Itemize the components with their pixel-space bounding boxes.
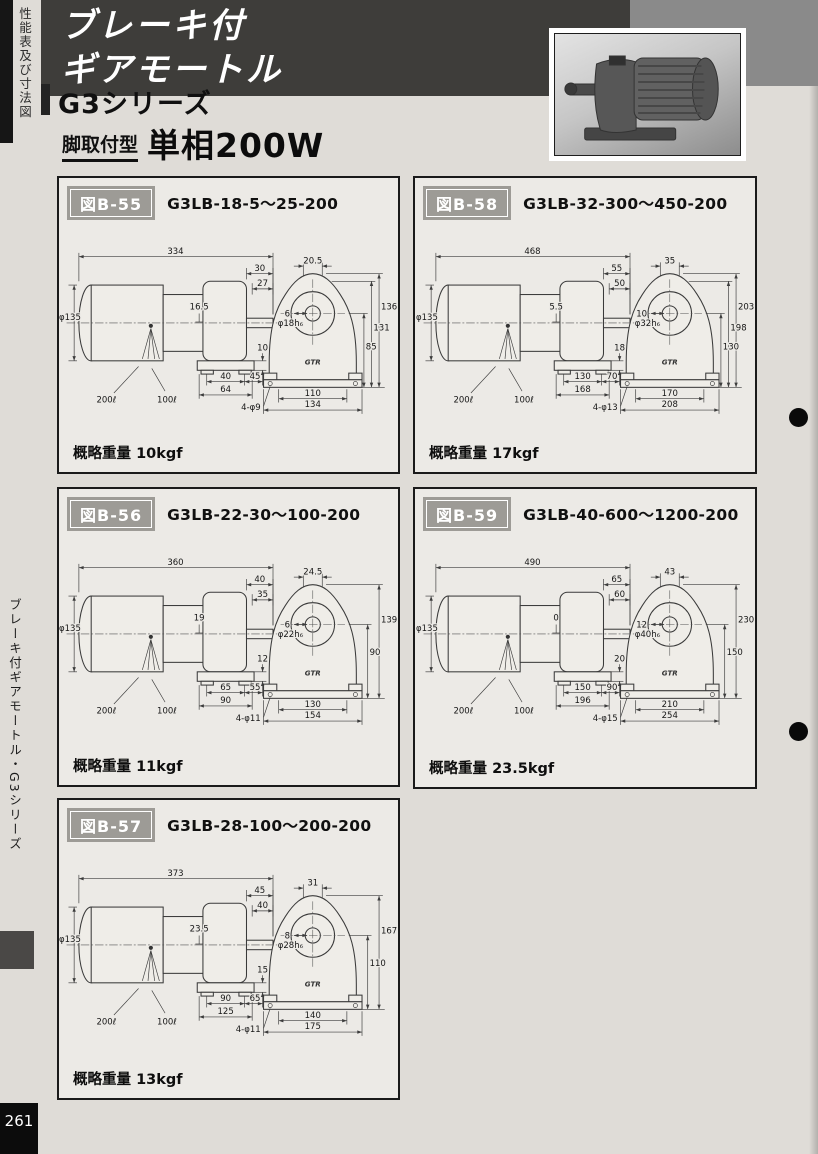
weight-label: 概略重量 bbox=[73, 759, 131, 775]
dim-label: 210 bbox=[661, 700, 677, 710]
dim-label: 130 bbox=[574, 372, 590, 382]
dim-label: φ40h₆ bbox=[634, 630, 660, 640]
dim-label: 12 bbox=[257, 654, 268, 664]
dim-label: 50 bbox=[614, 279, 625, 289]
gear-motor-photo bbox=[554, 33, 741, 156]
left-sidebar-vertical-label: ブレーキ付ギアモートル・G3シリーズ bbox=[5, 598, 24, 852]
dim-label: 140 bbox=[305, 1011, 321, 1021]
dim-label: 0 bbox=[553, 614, 558, 624]
dim-label: 131 bbox=[373, 324, 389, 334]
dim-label: φ18h₆ bbox=[278, 319, 304, 329]
figure-id-badge: 図B-58 bbox=[423, 186, 511, 220]
dim-label: 16.5 bbox=[190, 303, 209, 313]
dim-label: 35 bbox=[257, 590, 268, 600]
weight-label: 概略重量 bbox=[429, 446, 487, 462]
figure-header: 図B-57G3LB-28-100～200-200 bbox=[67, 808, 398, 842]
dim-label: 373 bbox=[167, 869, 183, 879]
dim-label: φ32h₆ bbox=[634, 319, 660, 329]
mount-type-label: 脚取付型 bbox=[62, 130, 138, 162]
approx-weight: 概略重量 17kgf bbox=[429, 442, 539, 463]
figure-header: 図B-58G3LB-32-300～450-200 bbox=[423, 186, 755, 220]
page-edge-shade bbox=[809, 0, 818, 1154]
dim-label: 168 bbox=[574, 385, 590, 395]
catalog-page: 性能表及び寸法図 ブレーキ付 ギアモートル bbox=[0, 0, 818, 1154]
dim-label: 55 bbox=[611, 264, 622, 274]
figure-id: 図B-57 bbox=[70, 811, 152, 839]
figure-id: 図B-56 bbox=[70, 500, 152, 528]
weight-value: 17kgf bbox=[492, 446, 539, 462]
dim-label: φ135 bbox=[416, 624, 438, 634]
dim-label: 200ℓ bbox=[96, 395, 116, 405]
dim-label: 130 bbox=[722, 342, 738, 352]
figure-header: 図B-56G3LB-22-30～100-200 bbox=[67, 497, 398, 531]
dim-label: 6 bbox=[285, 620, 290, 630]
dim-label: 4-φ11 bbox=[236, 1025, 261, 1035]
dim-label: φ22h₆ bbox=[278, 630, 304, 640]
dim-label: 65 bbox=[611, 575, 622, 585]
dim-label: 31 bbox=[307, 878, 318, 888]
weight-value: 11kgf bbox=[136, 759, 183, 775]
weight-value: 10kgf bbox=[136, 446, 183, 462]
dim-label: 90 bbox=[220, 696, 231, 706]
dim-label: 90 bbox=[370, 648, 381, 658]
binding-dot-top bbox=[789, 408, 808, 427]
dim-label: 40 bbox=[254, 575, 265, 585]
binding-dot-bottom bbox=[789, 722, 808, 741]
weight-value: 13kgf bbox=[136, 1072, 183, 1088]
dim-label: 230 bbox=[737, 616, 753, 626]
dim-label: 45 bbox=[250, 372, 261, 382]
dim-label: 203 bbox=[737, 303, 753, 313]
brand-mark: GTR bbox=[305, 358, 321, 367]
dim-label: 100ℓ bbox=[157, 1017, 177, 1027]
dim-label: 139 bbox=[381, 616, 397, 626]
dim-label: 198 bbox=[730, 324, 746, 334]
series-accent-bar bbox=[41, 84, 50, 115]
side-view bbox=[79, 903, 273, 996]
dim-label: 208 bbox=[661, 400, 677, 410]
dim-label: 43 bbox=[664, 567, 675, 577]
gear-motor-photo-illustration bbox=[555, 34, 740, 155]
dim-label: 90 bbox=[606, 683, 617, 693]
dim-label: 20.5 bbox=[303, 256, 322, 266]
figure-header: 図B-59G3LB-40-600～1200-200 bbox=[423, 497, 755, 531]
dim-label: 45 bbox=[254, 886, 265, 896]
dim-label: φ135 bbox=[59, 935, 81, 945]
model-number: G3LB-28-100～200-200 bbox=[167, 814, 371, 836]
dim-label: 10 bbox=[257, 343, 268, 353]
dim-label: 5.5 bbox=[549, 303, 563, 313]
dim-label: φ135 bbox=[59, 313, 81, 323]
corner-strip bbox=[0, 0, 13, 143]
weight-label: 概略重量 bbox=[73, 446, 131, 462]
model-number: G3LB-22-30～100-200 bbox=[167, 503, 360, 525]
dim-label: 55 bbox=[250, 683, 261, 693]
dim-label: 40 bbox=[220, 372, 231, 382]
dim-label: 150 bbox=[574, 683, 590, 693]
dim-label: 85 bbox=[366, 342, 377, 352]
dimension-drawing: 373454023.5φ135φ28h₆200ℓ100ℓ159065125318… bbox=[59, 846, 398, 1042]
dim-label: 64 bbox=[220, 385, 231, 395]
figure-box: 図B-59G3LB-40-600～1200-20049065600φ135φ40… bbox=[413, 487, 757, 789]
figure-id: 図B-59 bbox=[426, 500, 508, 528]
dim-label: φ135 bbox=[59, 624, 81, 634]
dim-label: 27 bbox=[257, 279, 268, 289]
dim-label: 12 bbox=[636, 620, 647, 630]
dim-label: φ28h₆ bbox=[278, 941, 304, 951]
figure-box: 図B-55G3LB-18-5～25-200334302716.5φ135φ18h… bbox=[57, 176, 400, 474]
dim-label: 167 bbox=[381, 927, 397, 937]
dim-label: 19 bbox=[194, 614, 205, 624]
dim-label: 65 bbox=[220, 683, 231, 693]
dim-label: 110 bbox=[305, 389, 321, 399]
dim-label: 30 bbox=[254, 264, 265, 274]
dim-label: 8 bbox=[285, 931, 290, 941]
figure-box: 図B-57G3LB-28-100～200-200373454023.5φ135φ… bbox=[57, 798, 400, 1100]
dim-label: 200ℓ bbox=[453, 395, 473, 405]
model-number: G3LB-32-300～450-200 bbox=[523, 192, 727, 214]
side-view bbox=[79, 592, 273, 685]
dim-label: 110 bbox=[370, 959, 386, 969]
brand-mark: GTR bbox=[305, 980, 321, 989]
dim-label: 35 bbox=[664, 256, 675, 266]
dim-label: 100ℓ bbox=[514, 395, 534, 405]
dimension-drawing: 360403519φ135φ22h₆200ℓ100ℓ1265559024.564… bbox=[59, 535, 398, 731]
weight-label: 概略重量 bbox=[73, 1072, 131, 1088]
approx-weight: 概略重量 11kgf bbox=[73, 755, 183, 776]
dim-label: 125 bbox=[218, 1007, 234, 1017]
approx-weight: 概略重量 10kgf bbox=[73, 442, 183, 463]
figure-id: 図B-55 bbox=[70, 189, 152, 217]
weight-label: 概略重量 bbox=[429, 761, 487, 777]
dim-label: 468 bbox=[524, 247, 540, 257]
dim-label: 18 bbox=[614, 343, 625, 353]
dim-label: 60 bbox=[614, 590, 625, 600]
side-view bbox=[435, 592, 629, 685]
dim-label: 6 bbox=[285, 309, 290, 319]
dim-label: 4-φ9 bbox=[241, 403, 261, 413]
figure-id-badge: 図B-57 bbox=[67, 808, 155, 842]
figure-box: 図B-58G3LB-32-300～450-20046855505.5φ135φ3… bbox=[413, 176, 757, 474]
dim-label: 100ℓ bbox=[157, 395, 177, 405]
dim-label: 65 bbox=[250, 994, 261, 1004]
model-number: G3LB-40-600～1200-200 bbox=[523, 503, 738, 525]
series-title: G3シリーズ bbox=[58, 82, 212, 121]
dim-label: 15 bbox=[257, 965, 268, 975]
dim-label: 100ℓ bbox=[157, 706, 177, 716]
dim-label: 4-φ13 bbox=[592, 403, 617, 413]
weight-value: 23.5kgf bbox=[492, 761, 554, 777]
dim-label: 360 bbox=[167, 558, 183, 568]
dim-label: 154 bbox=[305, 711, 321, 721]
dim-label: 4-φ11 bbox=[236, 714, 261, 724]
dim-label: 150 bbox=[726, 648, 742, 658]
figure-id-badge: 図B-59 bbox=[423, 497, 511, 531]
dim-label: 196 bbox=[574, 696, 590, 706]
dim-label: 20 bbox=[614, 654, 625, 664]
side-index-tab bbox=[0, 931, 34, 969]
dim-label: 254 bbox=[661, 711, 677, 721]
dim-label: 334 bbox=[167, 247, 183, 257]
approx-weight: 概略重量 13kgf bbox=[73, 1068, 183, 1089]
figure-header: 図B-55G3LB-18-5～25-200 bbox=[67, 186, 398, 220]
brand-mark: GTR bbox=[305, 669, 321, 678]
page-number-block: 261 bbox=[0, 1103, 38, 1154]
dim-label: 175 bbox=[305, 1022, 321, 1032]
dim-label: 90 bbox=[220, 994, 231, 1004]
side-view bbox=[435, 281, 629, 374]
brand-mark: GTR bbox=[661, 669, 677, 678]
figure-id-badge: 図B-56 bbox=[67, 497, 155, 531]
figure-id: 図B-58 bbox=[426, 189, 508, 217]
page-number: 261 bbox=[5, 1112, 34, 1130]
side-view bbox=[79, 281, 273, 374]
dim-label: 136 bbox=[381, 303, 397, 313]
product-photo-frame bbox=[549, 28, 746, 161]
dim-label: 130 bbox=[305, 700, 321, 710]
dim-label: 40 bbox=[257, 901, 268, 911]
figure-box: 図B-56G3LB-22-30～100-200360403519φ135φ22h… bbox=[57, 487, 400, 787]
dim-label: 200ℓ bbox=[96, 706, 116, 716]
dim-label: 4-φ15 bbox=[592, 714, 617, 724]
model-number: G3LB-18-5～25-200 bbox=[167, 192, 338, 214]
dimension-drawing: 46855505.5φ135φ32h₆200ℓ100ℓ1813070168351… bbox=[416, 224, 755, 420]
dimension-drawing: 49065600φ135φ40h₆200ℓ100ℓ201509019643124… bbox=[416, 535, 755, 731]
dim-label: 24.5 bbox=[303, 567, 322, 577]
figure-id-badge: 図B-55 bbox=[67, 186, 155, 220]
top-sidebar-vertical-label: 性能表及び寸法図 bbox=[15, 7, 34, 119]
dim-label: 490 bbox=[524, 558, 540, 568]
dim-label: 200ℓ bbox=[453, 706, 473, 716]
approx-weight: 概略重量 23.5kgf bbox=[429, 757, 554, 778]
dim-label: 10 bbox=[636, 309, 647, 319]
dim-label: φ135 bbox=[416, 313, 438, 323]
dim-label: 134 bbox=[305, 400, 321, 410]
dim-label: 170 bbox=[661, 389, 677, 399]
power-rating-label: 単相200W bbox=[147, 119, 324, 167]
brand-mark: GTR bbox=[661, 358, 677, 367]
dimension-drawing: 334302716.5φ135φ18h₆200ℓ100ℓ1040456420.5… bbox=[59, 224, 398, 420]
dim-label: 70 bbox=[606, 372, 617, 382]
dim-label: 200ℓ bbox=[96, 1017, 116, 1027]
dim-label: 100ℓ bbox=[514, 706, 534, 716]
dim-label: 23.5 bbox=[190, 925, 209, 935]
page-title-line1: ブレーキ付 bbox=[61, 4, 630, 48]
